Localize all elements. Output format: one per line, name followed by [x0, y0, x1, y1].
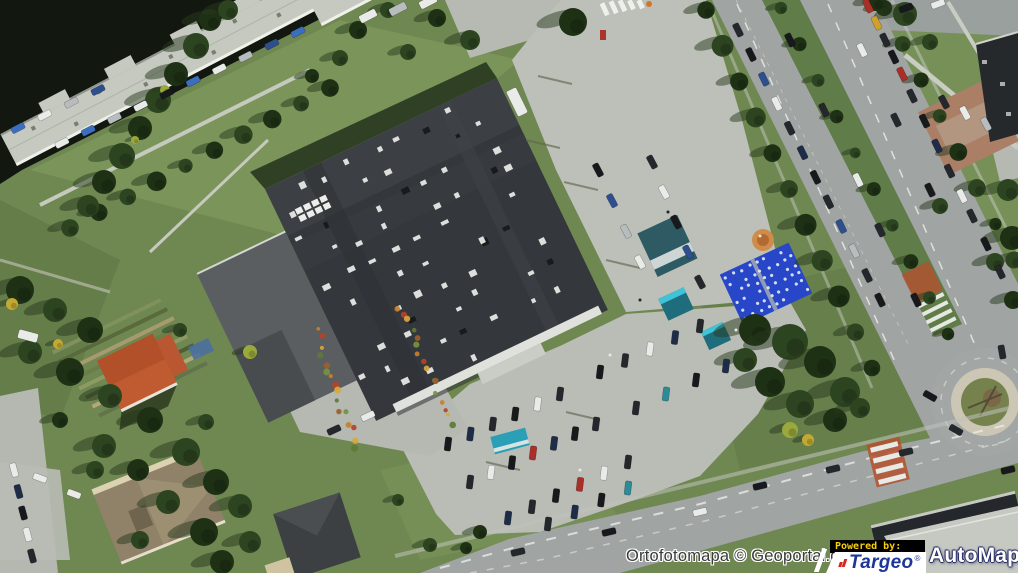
targeo-logo-text: Targeo [849, 553, 913, 572]
automapa-logo-text: AutoMapa [929, 544, 1018, 567]
registered-mark: ® [914, 554, 920, 563]
targeo-logo[interactable]: Targeo ® [826, 552, 926, 573]
automapa-logo[interactable]: AutoMapa® [929, 544, 1018, 568]
aerial-orthophoto[interactable] [0, 0, 1018, 573]
powered-by-label: Powered by: [830, 540, 925, 553]
map-screenshot: Ortofotomapa © Geoportal.gov.pl Powered … [0, 0, 1018, 573]
carousel [752, 229, 774, 251]
targeo-quote-icon [839, 559, 847, 567]
